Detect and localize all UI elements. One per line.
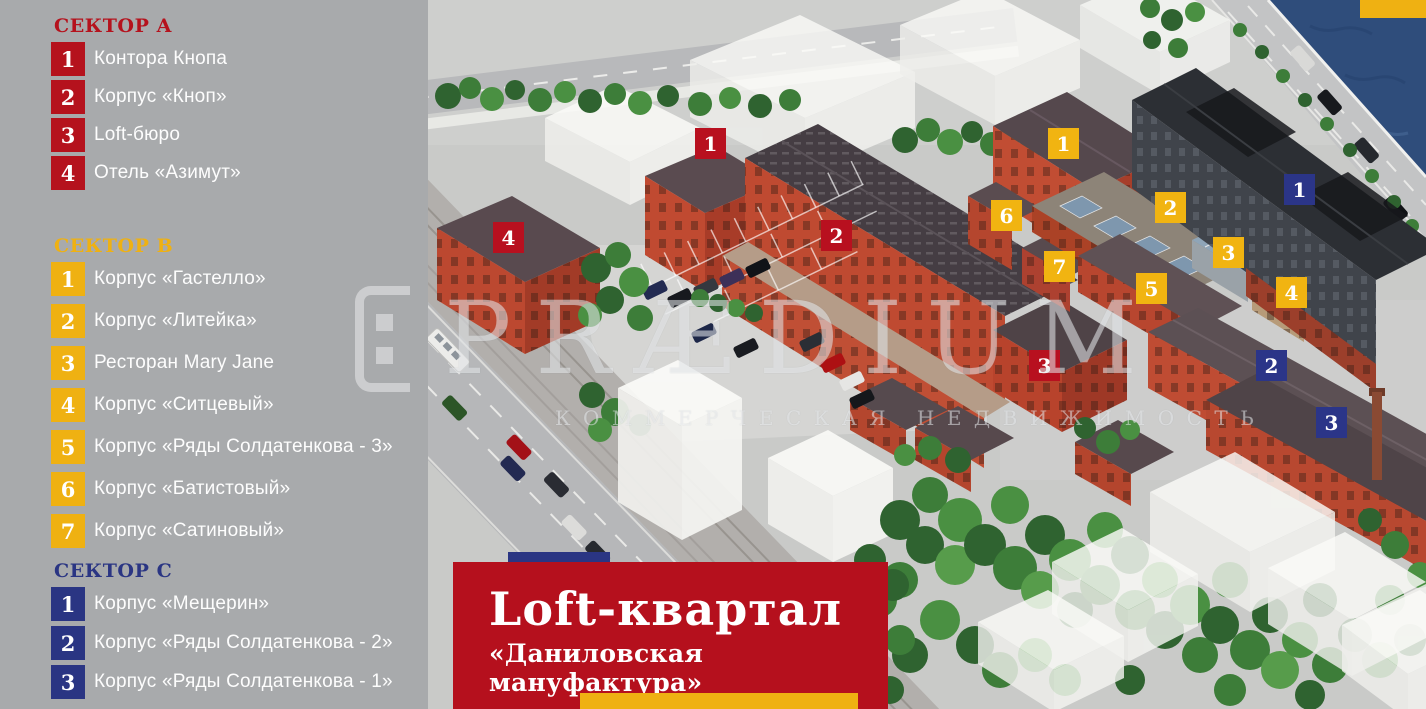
title-banner: Loft-квартал «Даниловская мануфактура» [453, 562, 888, 709]
map-marker-c1: 1 [1284, 174, 1315, 205]
map-marker-a3: 3 [1029, 350, 1060, 381]
map-marker-a1: 1 [695, 128, 726, 159]
banner-title: Loft-квартал [489, 582, 888, 636]
banner-subtitle: «Даниловская мануфактура» [489, 639, 888, 697]
map-marker-b4: 4 [1276, 277, 1307, 308]
map-marker-c3: 3 [1316, 407, 1347, 438]
map-marker-b7: 7 [1044, 251, 1075, 282]
banner-yellow-bar [580, 693, 858, 709]
map-marker-b3: 3 [1213, 237, 1244, 268]
map-marker-b5: 5 [1136, 273, 1167, 304]
map-marker-b6: 6 [991, 200, 1022, 231]
map-marker-b2: 2 [1155, 192, 1186, 223]
loft-quarter-map-poster: СЕКТОР A1Контора Кнопа2Корпус «Кноп»3Lof… [0, 0, 1426, 709]
map-marker-a4: 4 [493, 222, 524, 253]
map-marker-a2: 2 [821, 220, 852, 251]
map-marker-c2: 2 [1256, 350, 1287, 381]
banner-blue-tab [508, 552, 610, 562]
map-marker-b1: 1 [1048, 128, 1079, 159]
